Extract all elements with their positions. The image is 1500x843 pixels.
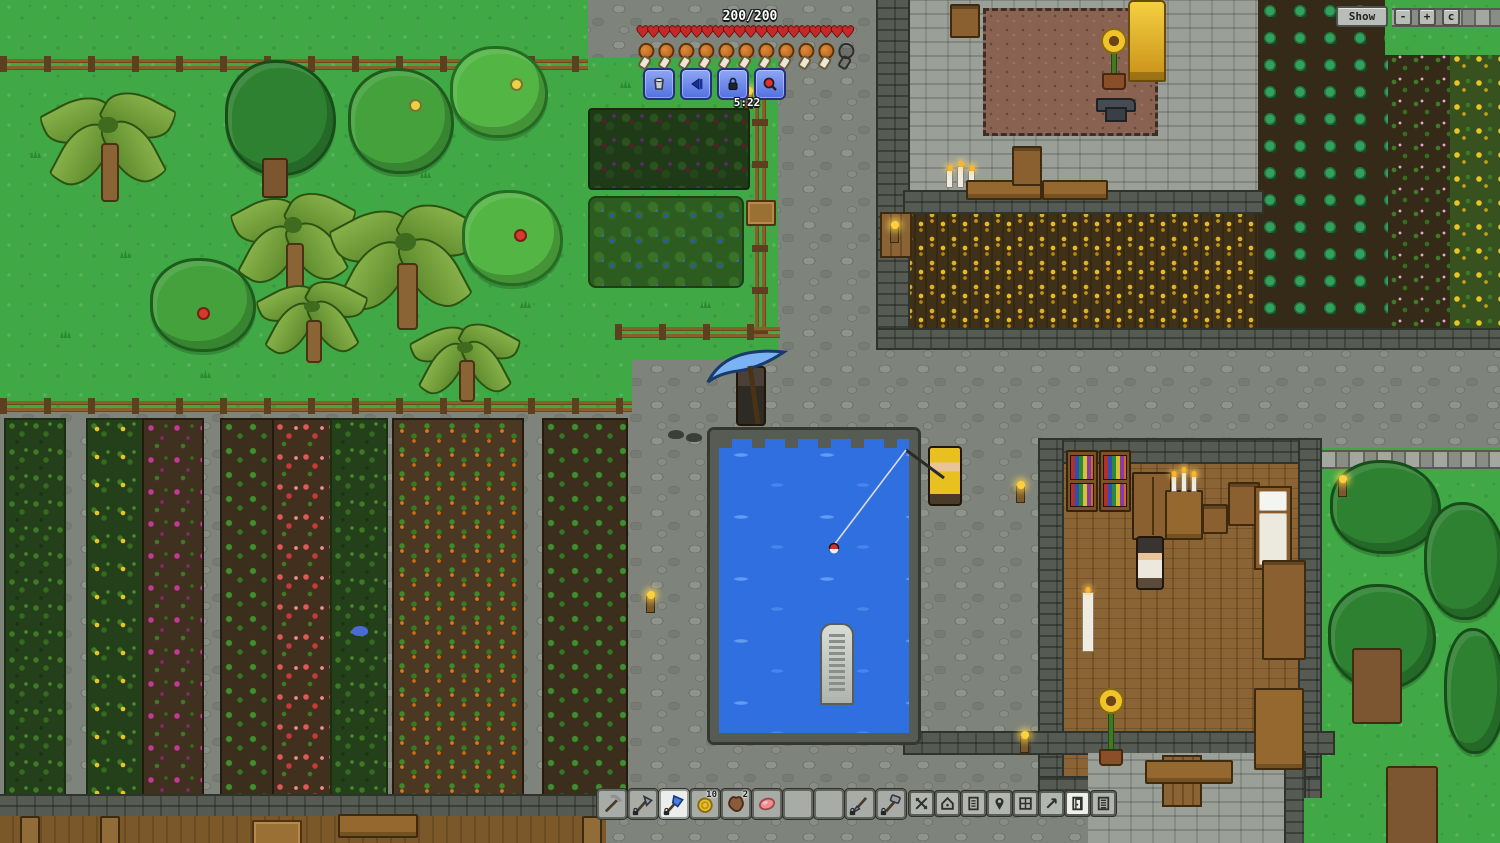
hotbar-slot-hide[interactable]: 2 — [721, 789, 751, 819]
wood-post — [582, 816, 602, 843]
drumstick-icon — [736, 42, 756, 71]
hotbar-slot-coin[interactable]: 10 — [690, 789, 720, 819]
building-wall — [878, 330, 1500, 348]
bookshelf[interactable] — [1066, 450, 1098, 512]
heart-icon: ♥ — [766, 25, 777, 39]
palm-tree — [415, 315, 515, 405]
minus-icon: - — [1400, 11, 1407, 22]
door-button[interactable] — [1065, 791, 1090, 816]
torch — [1338, 480, 1347, 497]
minimap-zoom-out-button[interactable]: - — [1394, 8, 1412, 26]
hotbar-slot-axe[interactable] — [628, 789, 658, 819]
minimap-mode-button[interactable]: c — [1442, 8, 1460, 26]
anvil[interactable] — [1096, 98, 1132, 122]
pickaxe-icon — [601, 793, 623, 815]
drumstick-icon — [696, 42, 716, 71]
heart-icon: ♥ — [647, 25, 658, 39]
fence-crate[interactable] — [746, 200, 776, 226]
slot-lock-icon — [879, 807, 888, 816]
blueberry-bushes — [588, 196, 744, 288]
drumstick-icon — [636, 42, 656, 71]
minimap-show-label: Show — [1349, 11, 1376, 22]
heart-icon: ♥ — [690, 25, 701, 39]
arrow-left-button[interactable] — [680, 68, 712, 100]
heart-icon: ♥ — [755, 25, 766, 39]
crop-plot-vines-flowers — [86, 418, 146, 797]
document-icon — [965, 795, 982, 812]
home-icon — [939, 795, 956, 812]
apple-bush — [150, 258, 256, 352]
torch — [646, 596, 655, 613]
slot-lock-icon — [631, 807, 640, 816]
heart-icon: ♥ — [798, 25, 809, 39]
wood-post — [100, 816, 120, 843]
quests-button[interactable] — [961, 791, 986, 816]
candelabra-table[interactable] — [1165, 490, 1203, 540]
fishing-line — [700, 420, 1020, 600]
heart-icon: ♥ — [712, 25, 723, 39]
home-button[interactable] — [935, 791, 960, 816]
hotbar-slot-shovel[interactable] — [845, 789, 875, 819]
mining-button[interactable] — [1039, 791, 1064, 816]
drumstick-icon — [816, 42, 836, 71]
crop-plot-carrots — [392, 418, 524, 797]
bucket-button[interactable] — [643, 68, 675, 100]
map-pin-icon — [991, 795, 1008, 812]
slot-lock-icon — [848, 807, 857, 816]
hotbar-slot-empty[interactable] — [783, 789, 813, 819]
door-icon — [1069, 795, 1086, 812]
drumstick-icon — [716, 42, 736, 71]
heart-icon: ♥ — [841, 25, 852, 39]
forest-tree — [1444, 628, 1500, 754]
minimap-zoom-in-button[interactable]: + — [1418, 8, 1436, 26]
chair[interactable] — [1012, 146, 1042, 186]
wheat-field — [905, 210, 1260, 330]
stone-wall — [0, 796, 634, 816]
torch — [1020, 736, 1029, 753]
drumstick-icon — [776, 42, 796, 71]
table[interactable] — [1042, 180, 1108, 200]
obelisk[interactable] — [820, 623, 854, 705]
list-icon — [1095, 795, 1112, 812]
hotbar-slot-blue-axe[interactable] — [659, 789, 689, 819]
duck[interactable] — [668, 430, 684, 439]
diagonal-pick-icon — [1043, 795, 1060, 812]
minimap-mode-icon: c — [1448, 11, 1455, 22]
heart-icon: ♥ — [701, 25, 712, 39]
tree-trunk — [1386, 766, 1438, 843]
hide-count: 2 — [743, 790, 748, 800]
hearts-row: ♥♥♥♥♥♥♥♥♥♥♥♥♥♥♥♥♥♥♥♥ — [636, 25, 852, 39]
hotbar: 10 2 — [597, 789, 906, 819]
heart-icon: ♥ — [636, 25, 647, 39]
heart-icon: ♥ — [658, 25, 669, 39]
hotbar-slot-meat[interactable] — [752, 789, 782, 819]
inventory-button[interactable] — [1013, 791, 1038, 816]
minimap-show-button[interactable]: Show — [1336, 6, 1388, 27]
pvp-button[interactable] — [909, 791, 934, 816]
drumstick-icon — [656, 42, 676, 71]
plus-icon: + — [1424, 11, 1431, 22]
crate[interactable] — [252, 820, 302, 843]
heart-icon: ♥ — [722, 25, 733, 39]
heart-icon: ♥ — [733, 25, 744, 39]
table[interactable] — [1145, 760, 1233, 784]
drumstick-icon — [836, 42, 856, 71]
palm-tree — [262, 272, 362, 367]
table[interactable] — [338, 814, 418, 838]
raw-meat-icon — [756, 793, 778, 815]
crop-plot-greens — [220, 418, 276, 797]
bench[interactable] — [1262, 560, 1306, 660]
tree-trunk — [1352, 648, 1402, 724]
bucket-icon — [650, 75, 668, 93]
yellow-fruit — [409, 99, 422, 112]
health-label: 200/200 — [650, 9, 850, 24]
heart-icon: ♥ — [820, 25, 831, 39]
building-wall — [878, 0, 908, 348]
crossed-swords-icon — [913, 795, 930, 812]
yellow-fruit — [510, 78, 523, 91]
crop-plot-berries — [272, 418, 334, 797]
hotbar-slot-empty[interactable] — [814, 789, 844, 819]
heart-icon: ♥ — [809, 25, 820, 39]
torch — [1016, 486, 1025, 503]
villager-npc[interactable] — [1136, 536, 1164, 590]
blackberry-hedge — [588, 108, 750, 190]
heart-icon: ♥ — [744, 25, 755, 39]
bed[interactable] — [1254, 486, 1292, 570]
window-grid-icon — [1017, 795, 1034, 812]
fruit-tree — [450, 46, 548, 138]
heart-icon: ♥ — [679, 25, 690, 39]
forest-tree — [1424, 502, 1500, 620]
blue-bird[interactable] — [352, 626, 368, 636]
lock-icon — [724, 75, 742, 93]
drumstick-icon — [756, 42, 776, 71]
game-screen: 200/200 ♥♥♥♥♥♥♥♥♥♥♥♥♥♥♥♥♥♥♥♥ — [0, 0, 1500, 843]
heart-icon: ♥ — [668, 25, 679, 39]
minimap-controls: Show - + c — [1336, 6, 1460, 27]
crop-plot-beets — [142, 418, 204, 797]
fruit-tree — [348, 68, 454, 174]
drumstick-icon — [676, 42, 696, 71]
sprout-field — [1388, 52, 1450, 332]
wooden-building — [0, 816, 606, 843]
wood-fence — [0, 398, 632, 414]
potted-sunflower — [1100, 28, 1128, 90]
log-button[interactable] — [1091, 791, 1116, 816]
crop-plot-vines — [330, 418, 388, 797]
menu-bar — [909, 791, 1116, 816]
wood-post — [20, 816, 40, 843]
stool[interactable] — [1202, 504, 1228, 534]
crop-plot-vines — [4, 418, 66, 797]
torch — [890, 226, 899, 243]
red-apple — [514, 229, 527, 242]
side-table[interactable] — [1254, 688, 1304, 770]
bookshelf[interactable] — [1099, 450, 1131, 512]
hotbar-slot-pickaxe[interactable] — [597, 789, 627, 819]
tall-candle — [1082, 592, 1094, 652]
hotbar-slot-hammer[interactable] — [876, 789, 906, 819]
slot-lock-icon — [662, 807, 671, 816]
waypoint-button[interactable] — [987, 791, 1012, 816]
heart-icon: ♥ — [830, 25, 841, 39]
flower-field — [1450, 52, 1500, 332]
apple-tree — [462, 190, 563, 286]
gold-statue — [1128, 0, 1166, 82]
potted-sunflower — [1096, 688, 1126, 766]
clock: 5:22 — [717, 96, 777, 109]
chair[interactable] — [950, 4, 980, 38]
food-row — [637, 43, 854, 70]
palm-tree — [48, 78, 168, 208]
heart-icon: ♥ — [776, 25, 787, 39]
coin-count: 10 — [706, 790, 717, 800]
crop-plot-greens — [542, 418, 628, 797]
heart-icon: ♥ — [787, 25, 798, 39]
arrow-left-icon — [687, 75, 705, 93]
red-apple — [197, 307, 210, 320]
cabbage-field — [1258, 0, 1388, 332]
drumstick-icon — [796, 42, 816, 71]
search-icon — [761, 75, 779, 93]
